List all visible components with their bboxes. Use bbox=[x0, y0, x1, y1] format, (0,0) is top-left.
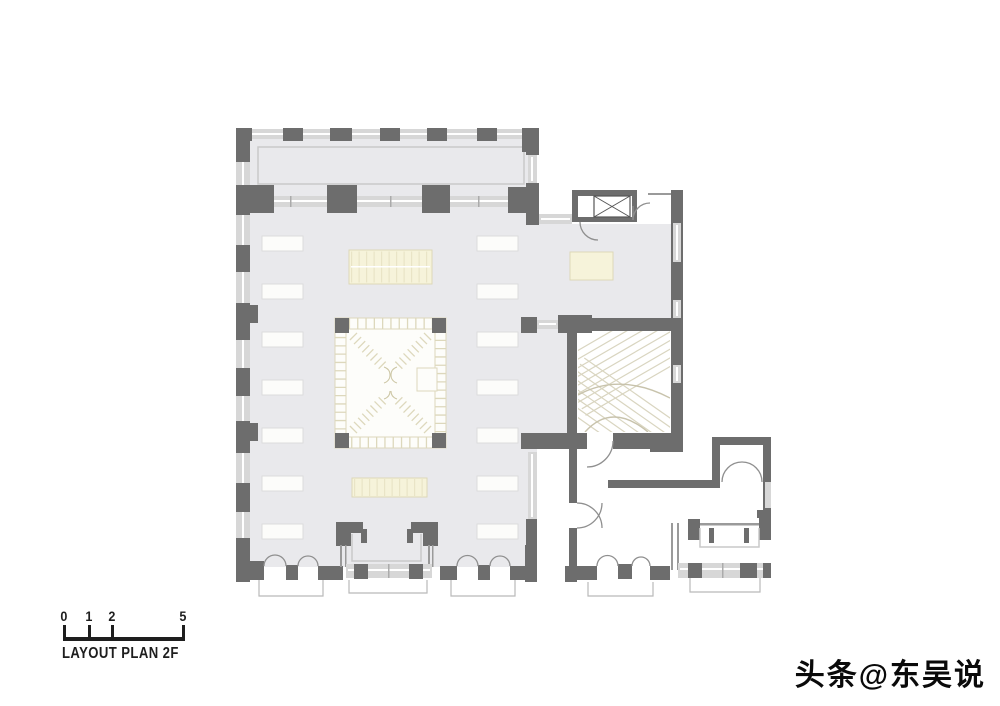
scale-bar-line bbox=[63, 637, 185, 641]
entry-steps bbox=[259, 578, 760, 596]
floor-plan-drawing bbox=[0, 0, 1000, 706]
scale-label-2: 2 bbox=[108, 608, 115, 624]
scale-label-1: 1 bbox=[85, 608, 92, 624]
scale-label-0: 0 bbox=[60, 608, 67, 624]
central-void bbox=[335, 318, 446, 448]
bay-window-right bbox=[678, 517, 771, 578]
elevator bbox=[572, 190, 637, 222]
watermark-text: 头条@东吴说 bbox=[795, 650, 986, 694]
scale-bar: 0 1 2 5 LAYOUT PLAN 2F bbox=[57, 608, 217, 668]
scale-label-5: 5 bbox=[179, 608, 186, 624]
plan-title: LAYOUT PLAN 2F bbox=[62, 645, 179, 663]
floor-plan-page: 0 1 2 5 LAYOUT PLAN 2F 头条@东吴说 bbox=[0, 0, 1000, 706]
